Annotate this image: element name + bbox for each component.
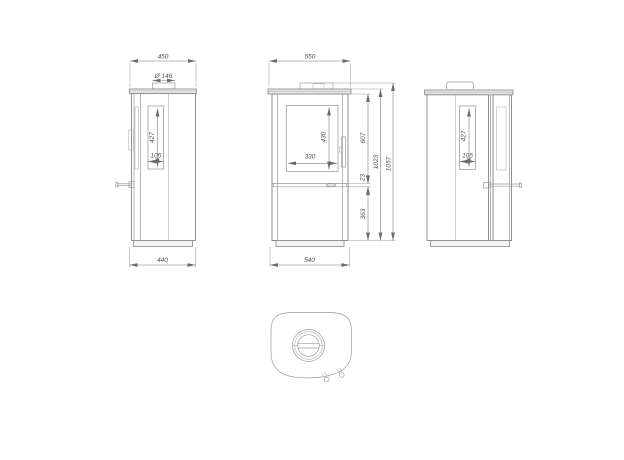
dim-front-lower-height: 363 [360, 208, 367, 219]
stove-drawing-svg: 450 Ø 146 427 105 440 [0, 0, 624, 460]
top-plate [268, 89, 351, 94]
dim-front-bottom-width: 540 [304, 257, 315, 264]
flue-collar-inner [313, 84, 324, 89]
dim-left-glass-height: 427 [149, 132, 156, 143]
dim-front-upper-height: 607 [360, 132, 367, 143]
rail-knob [327, 183, 336, 186]
dim-right-glass-width: 105 [462, 153, 473, 160]
door-edge-panel [493, 95, 512, 241]
base-plinth [134, 241, 193, 247]
base-plinth [276, 241, 344, 247]
flue-collar [447, 82, 474, 90]
dim-front-top-width: 550 [305, 54, 316, 61]
door-handle-end [520, 183, 522, 187]
stove-body-side [427, 95, 489, 241]
technical-drawing-page: 450 Ø 146 427 105 440 [0, 0, 624, 460]
dim-left-glass-width: 105 [150, 153, 161, 160]
flue-ring-middle [295, 332, 323, 360]
dim-left-flue-diameter: Ø 146 [154, 73, 173, 80]
door-handle-end [116, 183, 118, 187]
flue-ring-inner [298, 335, 320, 357]
hinge-tab [325, 377, 330, 382]
dim-front-rail-height: 23 [360, 174, 367, 183]
dim-front-body-height: 1023 [373, 154, 380, 169]
door-glass [287, 105, 339, 171]
front-view: 550 430 330 540 [268, 54, 396, 268]
hinge-tab [340, 373, 345, 378]
dim-front-glass-height: 430 [321, 131, 328, 142]
right-side-view: 427 105 [425, 82, 522, 247]
dim-left-top-width: 450 [158, 54, 169, 61]
base-plinth [431, 241, 510, 247]
flue-collar [153, 83, 176, 89]
dim-front-glass-width: 330 [305, 154, 316, 161]
top-view [271, 313, 352, 382]
hinge-tab-stem [322, 374, 325, 379]
dim-right-glass-height: 427 [461, 130, 468, 141]
dim-front-total-height: 1057 [386, 156, 393, 171]
dim-left-bottom-width: 440 [157, 257, 168, 264]
left-side-view: 450 Ø 146 427 105 440 [116, 54, 197, 268]
